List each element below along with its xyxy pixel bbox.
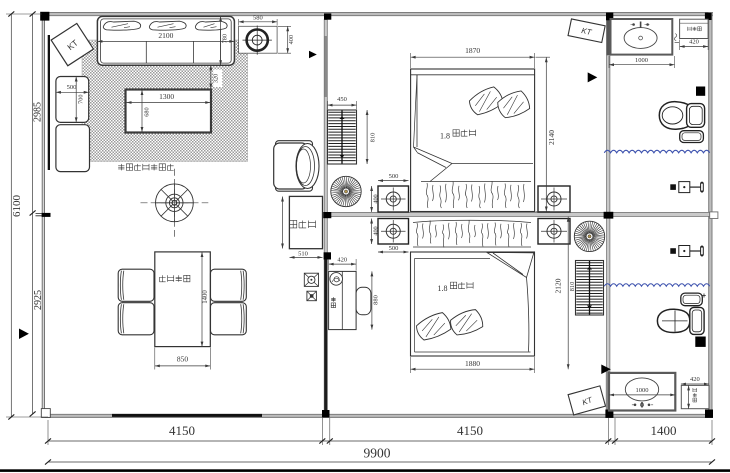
- svg-text:400: 400: [288, 35, 295, 44]
- svg-text:680: 680: [143, 107, 150, 116]
- svg-text:400: 400: [373, 194, 380, 203]
- svg-text:1.8: 1.8: [440, 132, 450, 141]
- svg-text:1880: 1880: [465, 359, 480, 368]
- svg-text:1870: 1870: [465, 46, 480, 55]
- svg-text:1300: 1300: [159, 92, 174, 101]
- svg-text:2140: 2140: [547, 130, 556, 145]
- svg-text:450: 450: [337, 96, 347, 103]
- svg-text:400: 400: [373, 226, 380, 235]
- svg-text:810: 810: [370, 133, 377, 143]
- svg-text:1400: 1400: [651, 423, 677, 438]
- svg-text:850: 850: [177, 355, 189, 364]
- svg-text:500: 500: [67, 84, 77, 91]
- svg-text:880: 880: [372, 295, 379, 305]
- svg-text:320: 320: [213, 74, 220, 83]
- svg-text:2120: 2120: [554, 278, 563, 293]
- svg-text:1400: 1400: [202, 290, 209, 304]
- svg-text:2985: 2985: [32, 102, 43, 122]
- svg-text:700: 700: [78, 94, 85, 103]
- svg-text:500: 500: [389, 173, 399, 180]
- svg-text:4150: 4150: [457, 423, 483, 438]
- svg-text:500: 500: [389, 245, 399, 252]
- svg-text:580: 580: [253, 14, 263, 21]
- svg-text:420: 420: [690, 376, 700, 383]
- svg-text:4150: 4150: [169, 423, 195, 438]
- svg-text:510: 510: [298, 250, 308, 257]
- svg-text:2925: 2925: [33, 290, 44, 310]
- svg-text:420: 420: [689, 38, 699, 45]
- svg-text:9900: 9900: [364, 446, 391, 461]
- svg-text:2100: 2100: [158, 31, 173, 40]
- svg-text:6100: 6100: [11, 195, 23, 218]
- svg-text:810: 810: [569, 282, 576, 291]
- svg-text:1000: 1000: [636, 387, 649, 394]
- svg-text:780: 780: [221, 34, 228, 43]
- svg-text:1.8: 1.8: [438, 284, 448, 293]
- svg-text:420: 420: [337, 256, 347, 263]
- svg-text:1000: 1000: [635, 57, 648, 64]
